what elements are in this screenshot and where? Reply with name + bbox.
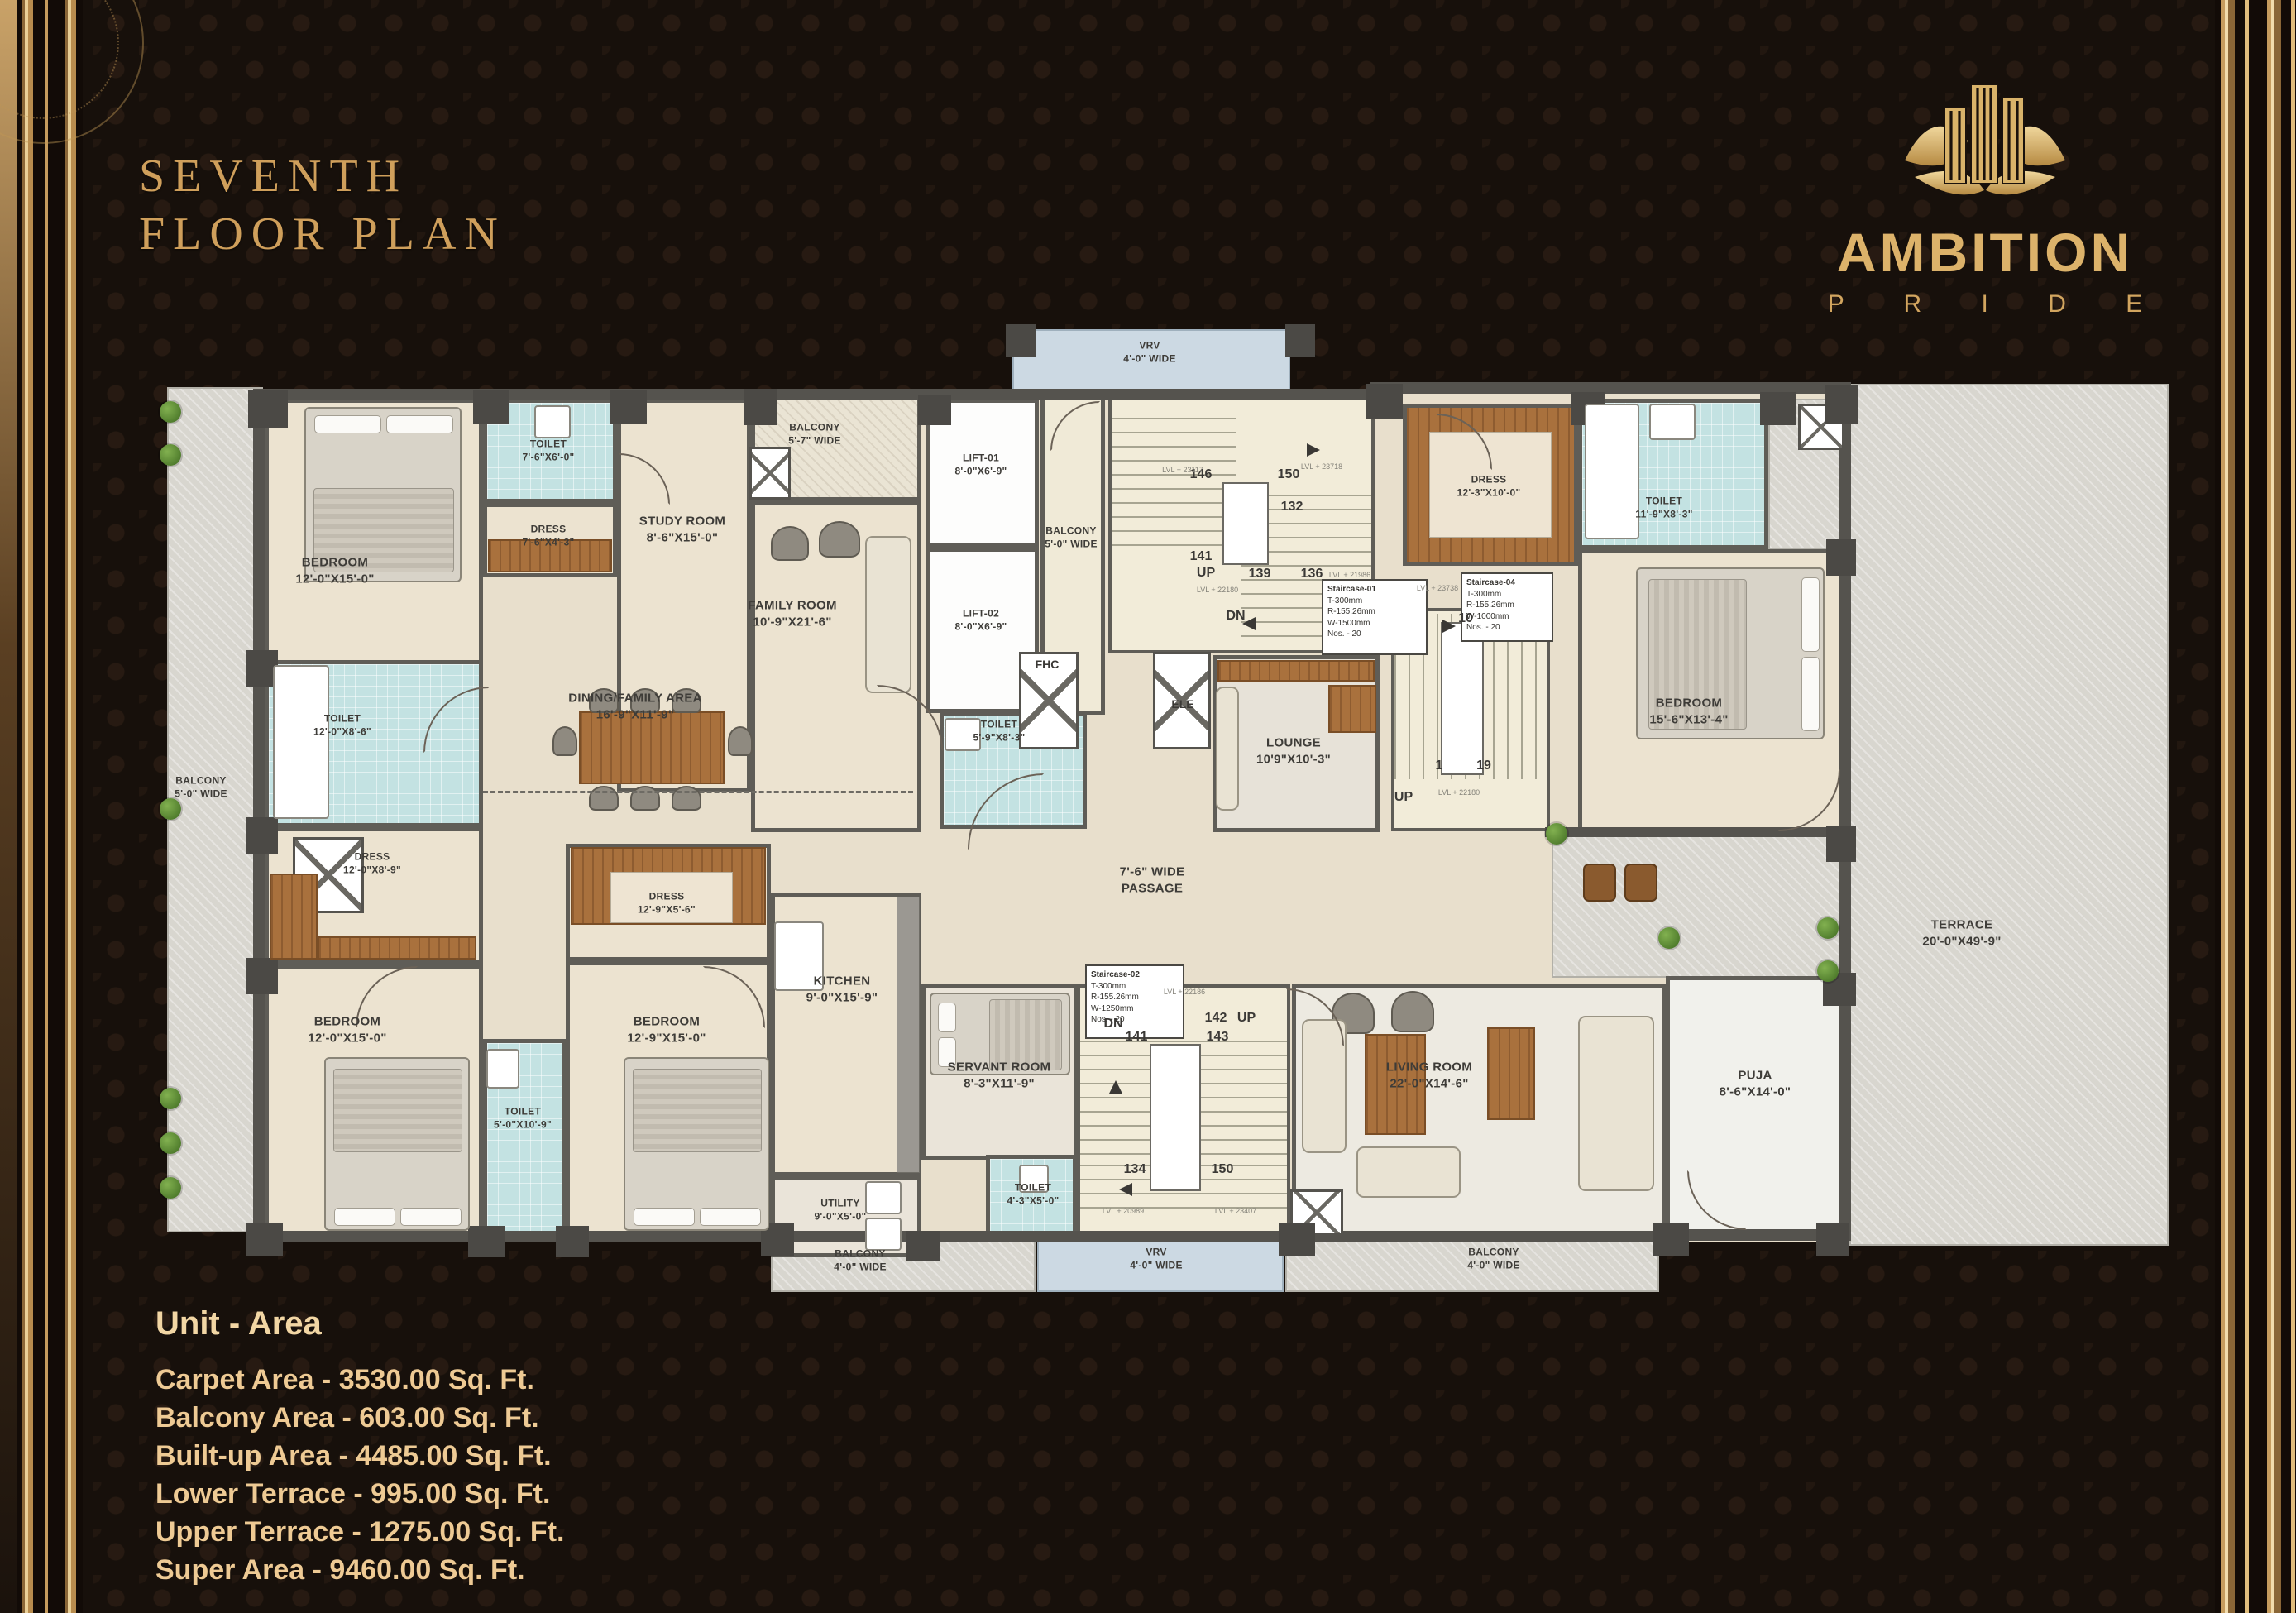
staircase-info-line: Nos. - 20 [1466,622,1547,634]
staircase-info-line: W-1250mm [1091,1003,1179,1015]
white-furniture [1649,404,1696,440]
column [610,390,647,424]
room-label: BALCONY 5'-0" WIDE [1045,524,1098,550]
wall [253,389,265,1241]
room-label: BALCONY 5'-0" WIDE [175,774,227,800]
sofa-furniture [1578,1016,1654,1191]
stair-annotation: 141 [1126,1030,1148,1045]
room-label: DRESS 12'-3"X10'-0" [1457,473,1520,499]
direction-arrow [1119,1183,1132,1196]
room-label: TOILET 11'-9"X8'-3" [1635,495,1692,520]
column [1826,539,1856,576]
wall [258,389,1376,400]
plant [1658,927,1680,949]
staircase-info-line: T-300mm [1466,589,1547,601]
chair-furniture [819,521,860,558]
column [246,817,278,854]
staircase-info-line: R-155.26mm [1466,600,1547,611]
room-label: LOUNGE 10'9"X10'-3" [1256,735,1331,768]
plant [160,798,181,820]
room-label: TOILET 7'-6"X6'-0" [522,438,574,463]
room-label: TOILET 12'-0"X8'-6" [313,712,371,738]
room-label: TOILET 5'-0"X10'-9" [494,1105,552,1131]
room-label: STUDY ROOM 8'-6"X15'-0" [639,514,725,546]
chair-furniture [630,786,660,811]
stair-annotation: LVL + 23117 [1162,466,1203,474]
column [918,395,951,425]
column [246,1223,283,1256]
staircase-info-line: Staircase-02 [1091,969,1179,981]
chair-furniture [1391,991,1434,1032]
bed [624,1057,769,1231]
room-label: SERVANT ROOM 8'-3"X11'-9" [948,1060,1051,1092]
stair-annotation: 150 [1278,467,1300,482]
shaft-top-left [749,447,791,500]
terrace-mid-right [1552,835,1849,978]
room-label: FAMILY ROOM 10'-9"X21'-6" [748,598,836,630]
pillow [634,1208,695,1226]
stair-annotation: UP [1197,566,1215,581]
chair-furniture [771,526,809,561]
wall [253,1231,1669,1242]
staircase-info-box: Staircase-01T-300mmR-155.26mmW-1500mmNos… [1322,579,1428,655]
column [246,958,278,994]
stair-annotation: 141 [1190,549,1213,564]
column [1285,324,1315,357]
room-label: PUJA 8'-6"X14'-0" [1720,1068,1791,1100]
staircase-info-line: Nos. - 20 [1327,629,1422,640]
gray-furniture [897,897,920,1173]
white-furniture [273,665,329,819]
room-label: LIFT-01 8'-0"X6'-9" [954,452,1007,477]
white-furniture [865,1218,902,1251]
stair-annotation: 132 [1281,500,1303,515]
wood-furniture [1217,660,1375,682]
room-label: LIFT-02 8'-0"X6'-9" [954,607,1007,633]
chair-furniture [672,786,701,811]
plant [160,1177,181,1199]
direction-arrow [1307,443,1320,457]
pillow [400,1208,462,1226]
white-furniture [865,1181,902,1214]
column [1653,1223,1689,1256]
staircase-info-line: Staircase-01 [1327,584,1422,596]
bed [324,1057,470,1231]
stair-annotation: ELE [1171,697,1193,711]
chair-furniture [589,786,619,811]
staircase-info-line: Staircase-04 [1466,577,1547,589]
room-label: DRESS 7'-6"X4'-3" [522,523,574,548]
stair-annotation: 142 [1205,1011,1227,1026]
room-label: BALCONY 4'-0" WIDE [1467,1246,1520,1271]
plant [1546,823,1567,845]
stair-annotation: 10 [1458,611,1473,626]
wood-furniture [318,936,476,960]
stair-annotation: LVL + 20989 [1103,1207,1144,1215]
sofa-furniture [1216,687,1239,811]
pillow [1801,657,1820,731]
stair-annotation: 1 [1436,759,1443,773]
wood-furniture [1328,685,1376,733]
room-label: VRV 4'-0" WIDE [1123,339,1176,365]
stair-annotation: FHC [1036,658,1060,671]
column [1825,385,1858,424]
stair-annotation: 19 [1476,759,1491,773]
column [1826,826,1856,862]
stair-annotation: LVL + 22186 [1164,988,1205,996]
direction-arrow [1442,620,1456,633]
plant [1817,917,1839,939]
stair-annotation: LVL + 21986 [1329,571,1370,579]
direction-arrow [1109,1080,1122,1094]
pillow [700,1208,761,1226]
wood-furniture [1487,1027,1535,1120]
wall [1839,382,1851,1241]
column [1760,392,1796,425]
room-label: BEDROOM 12'-0"X15'-0" [308,1014,386,1046]
room-label: LIVING ROOM 22'-0"X14'-6" [1386,1060,1472,1092]
room-label: DRESS 12'-9"X5'-6" [638,890,696,916]
column [1279,1223,1315,1256]
chair-furniture [552,726,577,756]
staircase-info-line: T-300mm [1327,596,1422,607]
chair-furniture [728,726,753,756]
room-label: BEDROOM 12'-0"X15'-0" [295,555,374,587]
room-label: TERRACE 20'-0"X49'-9" [1922,917,2001,950]
stair-annotation: DN [1226,609,1245,624]
stair-annotation: LVL + 22180 [1197,586,1238,594]
pillow [386,415,453,433]
staircase-01-treads [1112,418,1236,554]
column [1006,324,1036,357]
wall [1545,827,1849,837]
plant [160,444,181,466]
stair-annotation: 136 [1301,567,1323,582]
column [1366,384,1403,419]
stair-annotation: LVL + 23407 [1215,1207,1256,1215]
staircase-02-landing [1150,1044,1201,1191]
pillow [334,1208,395,1226]
stair-annotation: LVL + 23718 [1301,462,1342,471]
staircase-info-line: W-1000mm [1466,611,1547,623]
white-furniture [1585,404,1639,539]
sofa-furniture [865,536,911,693]
room-label: UTILITY 9'-0"X5'-0" [814,1197,866,1223]
stair-annotation: UP [1394,790,1413,805]
stair-annotation: 134 [1124,1162,1146,1177]
plant [160,401,181,423]
white-furniture [534,405,571,438]
room-label: 7'-6" WIDE PASSAGE [1120,864,1185,897]
floor-plan: Staircase-01T-300mmR-155.26mmW-1500mmNos… [0,0,2296,1613]
wchair-furniture [1624,864,1657,902]
pillow [938,1003,956,1032]
staircase-01-landing [1222,482,1269,565]
plant [160,1132,181,1154]
column [556,1226,589,1257]
column [906,1231,940,1261]
sofa-furniture [1356,1146,1461,1198]
staircase-info-line: R-155.26mm [1327,606,1422,618]
plant [1817,960,1839,982]
wchair-furniture [1583,864,1616,902]
stair-annotation: LVL + 23738 [1417,584,1458,592]
room-label: DRESS 12'-0"X8'-9" [343,850,401,876]
staircase-info-line: W-1500mm [1327,618,1422,629]
room-label: BEDROOM 15'-6"X13'-4" [1649,696,1728,728]
column [468,1226,505,1257]
column [248,390,288,428]
right-terrace [1849,384,2169,1246]
room-label: KITCHEN 9'-0"X15'-9" [806,974,878,1006]
stair-annotation: UP [1237,1011,1256,1026]
room-label: TOILET 4'-3"X5'-0" [1007,1181,1059,1207]
pillow [314,415,381,433]
wood-furniture [270,874,318,960]
staircase-04-landing [1441,622,1484,775]
blanket [333,1069,463,1152]
room-label: DINING/FAMILY AREA 16'-9"X11'-9" [568,691,702,723]
column [744,389,777,425]
stair-annotation: 143 [1207,1030,1229,1045]
white-furniture [486,1049,519,1089]
column [473,390,509,424]
stair-annotation: 139 [1249,567,1271,582]
room-label: BALCONY 4'-0" WIDE [834,1247,887,1273]
blanket [633,1069,763,1152]
room-label: BALCONY 5'-7" WIDE [788,421,841,447]
room-label: TOILET 5'-9"X8'-3" [973,718,1025,744]
dashed-wall [483,791,913,793]
stair-annotation: DN [1103,1017,1122,1031]
room-label: BEDROOM 12'-9"X15'-0" [627,1014,706,1046]
stair-annotation: 150 [1212,1162,1234,1177]
staircase-info-box: Staircase-02T-300mmR-155.26mmW-1250mmNos… [1085,964,1184,1039]
column [1816,1223,1849,1256]
plant [160,1088,181,1109]
left-terrace [167,387,263,1232]
staircase-info-box: Staircase-04T-300mmR-155.26mmW-1000mmNos… [1461,572,1553,642]
stair-annotation: LVL + 22180 [1438,788,1480,797]
room-label: VRV 4'-0" WIDE [1130,1246,1183,1271]
pillow [1801,577,1820,652]
